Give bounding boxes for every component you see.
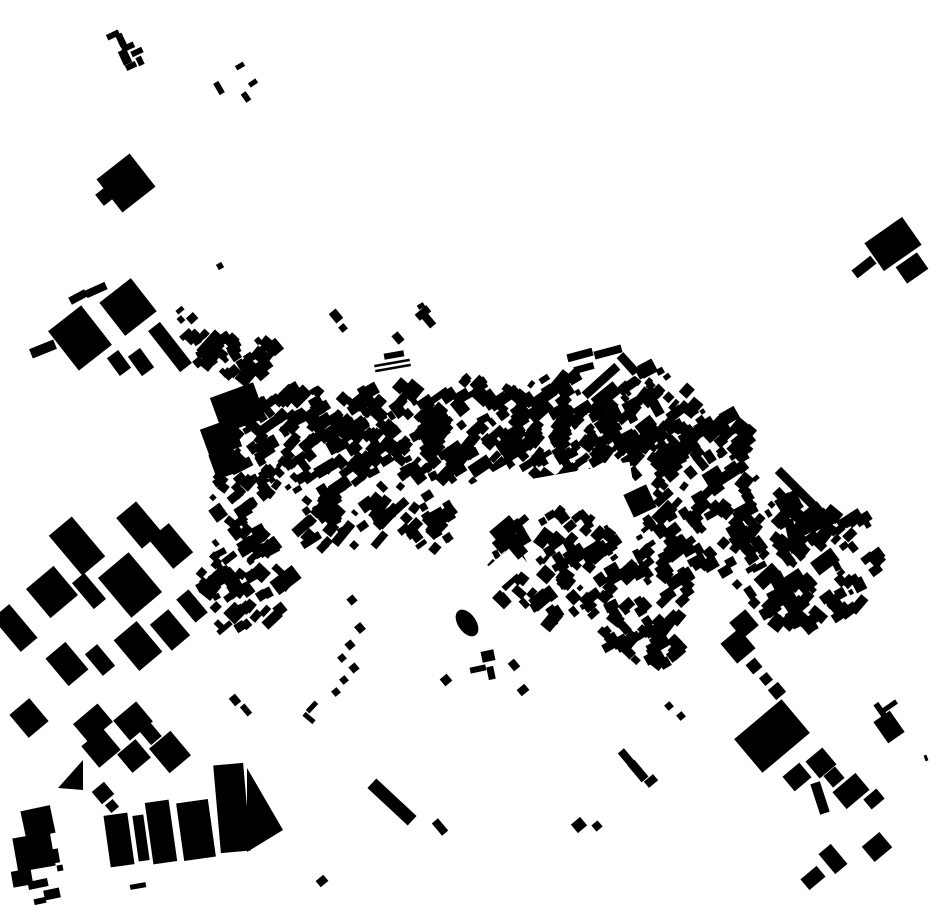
building — [301, 495, 312, 506]
building — [538, 517, 547, 527]
building — [391, 331, 404, 345]
building — [538, 374, 550, 385]
building — [440, 674, 453, 687]
building — [48, 305, 112, 370]
building — [420, 489, 434, 502]
building — [810, 548, 840, 576]
building — [527, 380, 535, 389]
map-container — [0, 0, 930, 924]
building — [627, 760, 648, 783]
building — [664, 701, 674, 711]
building — [186, 312, 199, 324]
building — [571, 817, 587, 833]
building — [302, 506, 312, 516]
building — [511, 585, 527, 600]
building — [339, 675, 349, 685]
building — [98, 552, 162, 618]
building — [349, 540, 359, 550]
building — [311, 385, 324, 398]
building — [764, 509, 772, 518]
building — [456, 420, 467, 431]
building — [99, 278, 156, 336]
building-triangle — [247, 768, 283, 852]
building — [442, 532, 454, 544]
building — [517, 684, 530, 697]
building — [376, 480, 388, 492]
building — [810, 781, 829, 815]
building — [851, 256, 876, 279]
building — [12, 832, 55, 872]
building — [130, 47, 143, 58]
building — [384, 350, 405, 359]
building — [848, 589, 854, 596]
building — [636, 534, 644, 541]
building-triangle — [58, 760, 83, 790]
building — [351, 509, 359, 516]
building — [26, 566, 78, 618]
building — [745, 563, 758, 574]
building — [210, 601, 222, 613]
building — [331, 687, 341, 697]
building — [145, 800, 177, 865]
building — [117, 739, 151, 773]
building — [240, 703, 252, 716]
figure-ground-map — [0, 0, 930, 924]
building — [573, 362, 594, 374]
building — [212, 539, 220, 547]
building — [432, 818, 448, 835]
building — [346, 594, 357, 605]
building — [213, 763, 251, 853]
building — [732, 579, 743, 590]
building — [43, 887, 61, 900]
building — [213, 81, 225, 95]
building — [356, 520, 369, 533]
building — [617, 352, 640, 376]
building — [486, 666, 496, 680]
building — [720, 628, 755, 663]
building — [767, 501, 775, 509]
building — [470, 664, 487, 673]
building — [717, 536, 731, 550]
building — [618, 597, 636, 614]
building — [643, 576, 652, 585]
building — [873, 711, 904, 744]
building — [196, 567, 208, 579]
building — [367, 778, 416, 825]
building — [508, 659, 521, 672]
building — [208, 503, 228, 523]
building — [148, 322, 192, 372]
building — [285, 484, 292, 491]
building — [734, 699, 810, 773]
building — [337, 653, 347, 663]
building — [329, 309, 344, 324]
building — [676, 711, 686, 721]
open-space — [392, 545, 528, 668]
building — [306, 701, 319, 714]
building — [135, 56, 144, 67]
building — [57, 865, 64, 872]
building — [428, 542, 441, 556]
building — [9, 698, 48, 738]
building — [209, 494, 217, 502]
building — [862, 832, 892, 862]
building — [85, 644, 115, 676]
building — [408, 501, 421, 514]
building — [45, 642, 88, 686]
building — [519, 597, 531, 609]
building — [105, 799, 119, 813]
building — [623, 484, 656, 517]
building — [565, 589, 582, 606]
building — [103, 813, 134, 868]
building — [679, 383, 695, 399]
building — [229, 694, 242, 707]
building — [29, 339, 57, 358]
building — [759, 672, 773, 686]
building — [128, 348, 154, 376]
building — [302, 712, 315, 724]
building — [130, 882, 147, 890]
building — [34, 897, 47, 905]
building — [354, 622, 366, 634]
building — [577, 584, 584, 591]
building — [49, 516, 105, 575]
building — [610, 553, 619, 561]
building — [396, 482, 406, 492]
building — [847, 541, 859, 554]
building — [175, 306, 184, 315]
building — [924, 755, 929, 762]
building — [344, 639, 355, 650]
building — [574, 389, 581, 396]
building — [480, 649, 495, 662]
building — [348, 662, 359, 673]
building — [292, 485, 302, 494]
building — [679, 481, 689, 491]
building — [371, 530, 389, 549]
building — [248, 78, 258, 87]
building — [316, 875, 329, 888]
building — [819, 844, 848, 874]
building — [782, 763, 811, 792]
building — [84, 282, 107, 298]
building — [0, 604, 38, 652]
building — [492, 590, 512, 610]
building — [568, 606, 580, 618]
building — [216, 262, 224, 270]
building — [338, 323, 348, 333]
building — [663, 373, 672, 381]
building — [662, 391, 674, 403]
building — [20, 805, 55, 839]
building — [683, 465, 698, 480]
building — [241, 91, 252, 103]
building — [566, 348, 593, 362]
building — [882, 699, 898, 712]
building — [177, 315, 186, 324]
building — [699, 408, 706, 415]
building — [235, 62, 245, 71]
building — [746, 658, 763, 675]
building — [176, 799, 216, 861]
building — [107, 350, 131, 376]
building — [830, 534, 841, 545]
building — [800, 866, 825, 890]
building — [655, 367, 665, 376]
building — [591, 820, 602, 831]
building — [839, 541, 850, 551]
building — [272, 466, 285, 478]
building — [132, 814, 149, 861]
building — [118, 48, 132, 65]
building — [768, 682, 786, 700]
